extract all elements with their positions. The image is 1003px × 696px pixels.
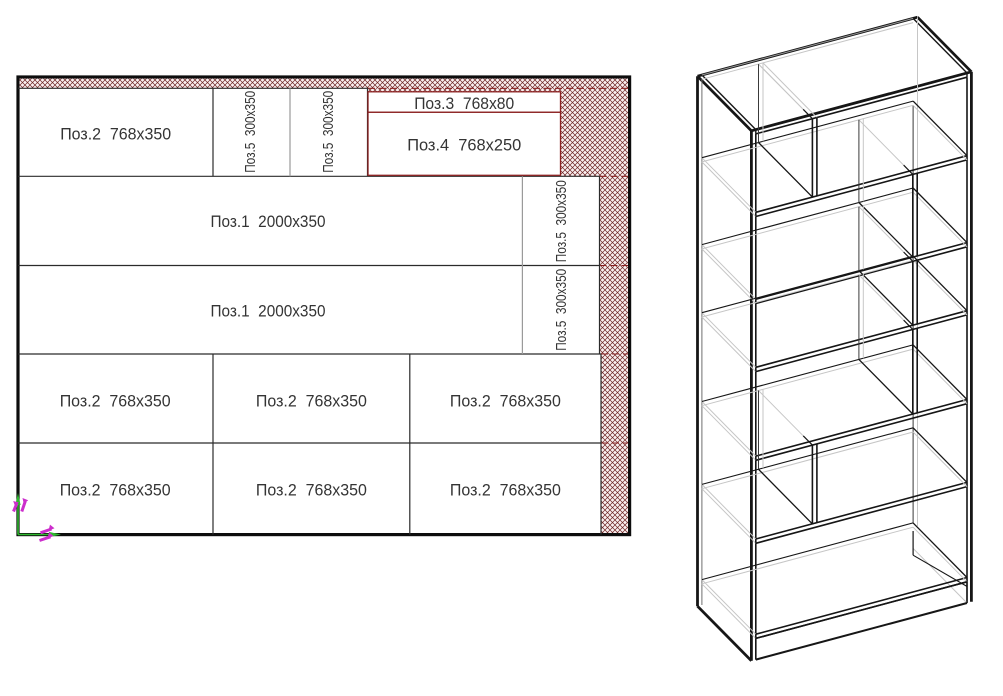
svg-text:Поз.5 300x350: Поз.5 300x350 xyxy=(554,269,570,351)
svg-text:Поз.2 768x350: Поз.2 768x350 xyxy=(60,391,171,410)
svg-text:Поз.2 768x350: Поз.2 768x350 xyxy=(256,391,367,410)
svg-text:Поз.5 300x350: Поз.5 300x350 xyxy=(243,91,259,173)
svg-text:Поз.1 2000x350: Поз.1 2000x350 xyxy=(211,212,326,231)
svg-text:Поз.1 2000x350: Поз.1 2000x350 xyxy=(211,302,326,321)
svg-text:Поз.2 768x350: Поз.2 768x350 xyxy=(450,391,561,410)
svg-text:Поз.4 768x250: Поз.4 768x250 xyxy=(407,136,521,155)
svg-text:Поз.2 768x350: Поз.2 768x350 xyxy=(60,124,171,143)
svg-text:Поз.5 300x350: Поз.5 300x350 xyxy=(321,91,337,173)
svg-text:Поз.3 768x80: Поз.3 768x80 xyxy=(414,94,514,113)
svg-text:Поз.5 300x350: Поз.5 300x350 xyxy=(554,180,570,262)
svg-text:Поз.2 768x350: Поз.2 768x350 xyxy=(256,480,367,499)
svg-text:Поз.2 768x350: Поз.2 768x350 xyxy=(60,480,171,499)
svg-text:Поз.2 768x350: Поз.2 768x350 xyxy=(450,480,561,499)
